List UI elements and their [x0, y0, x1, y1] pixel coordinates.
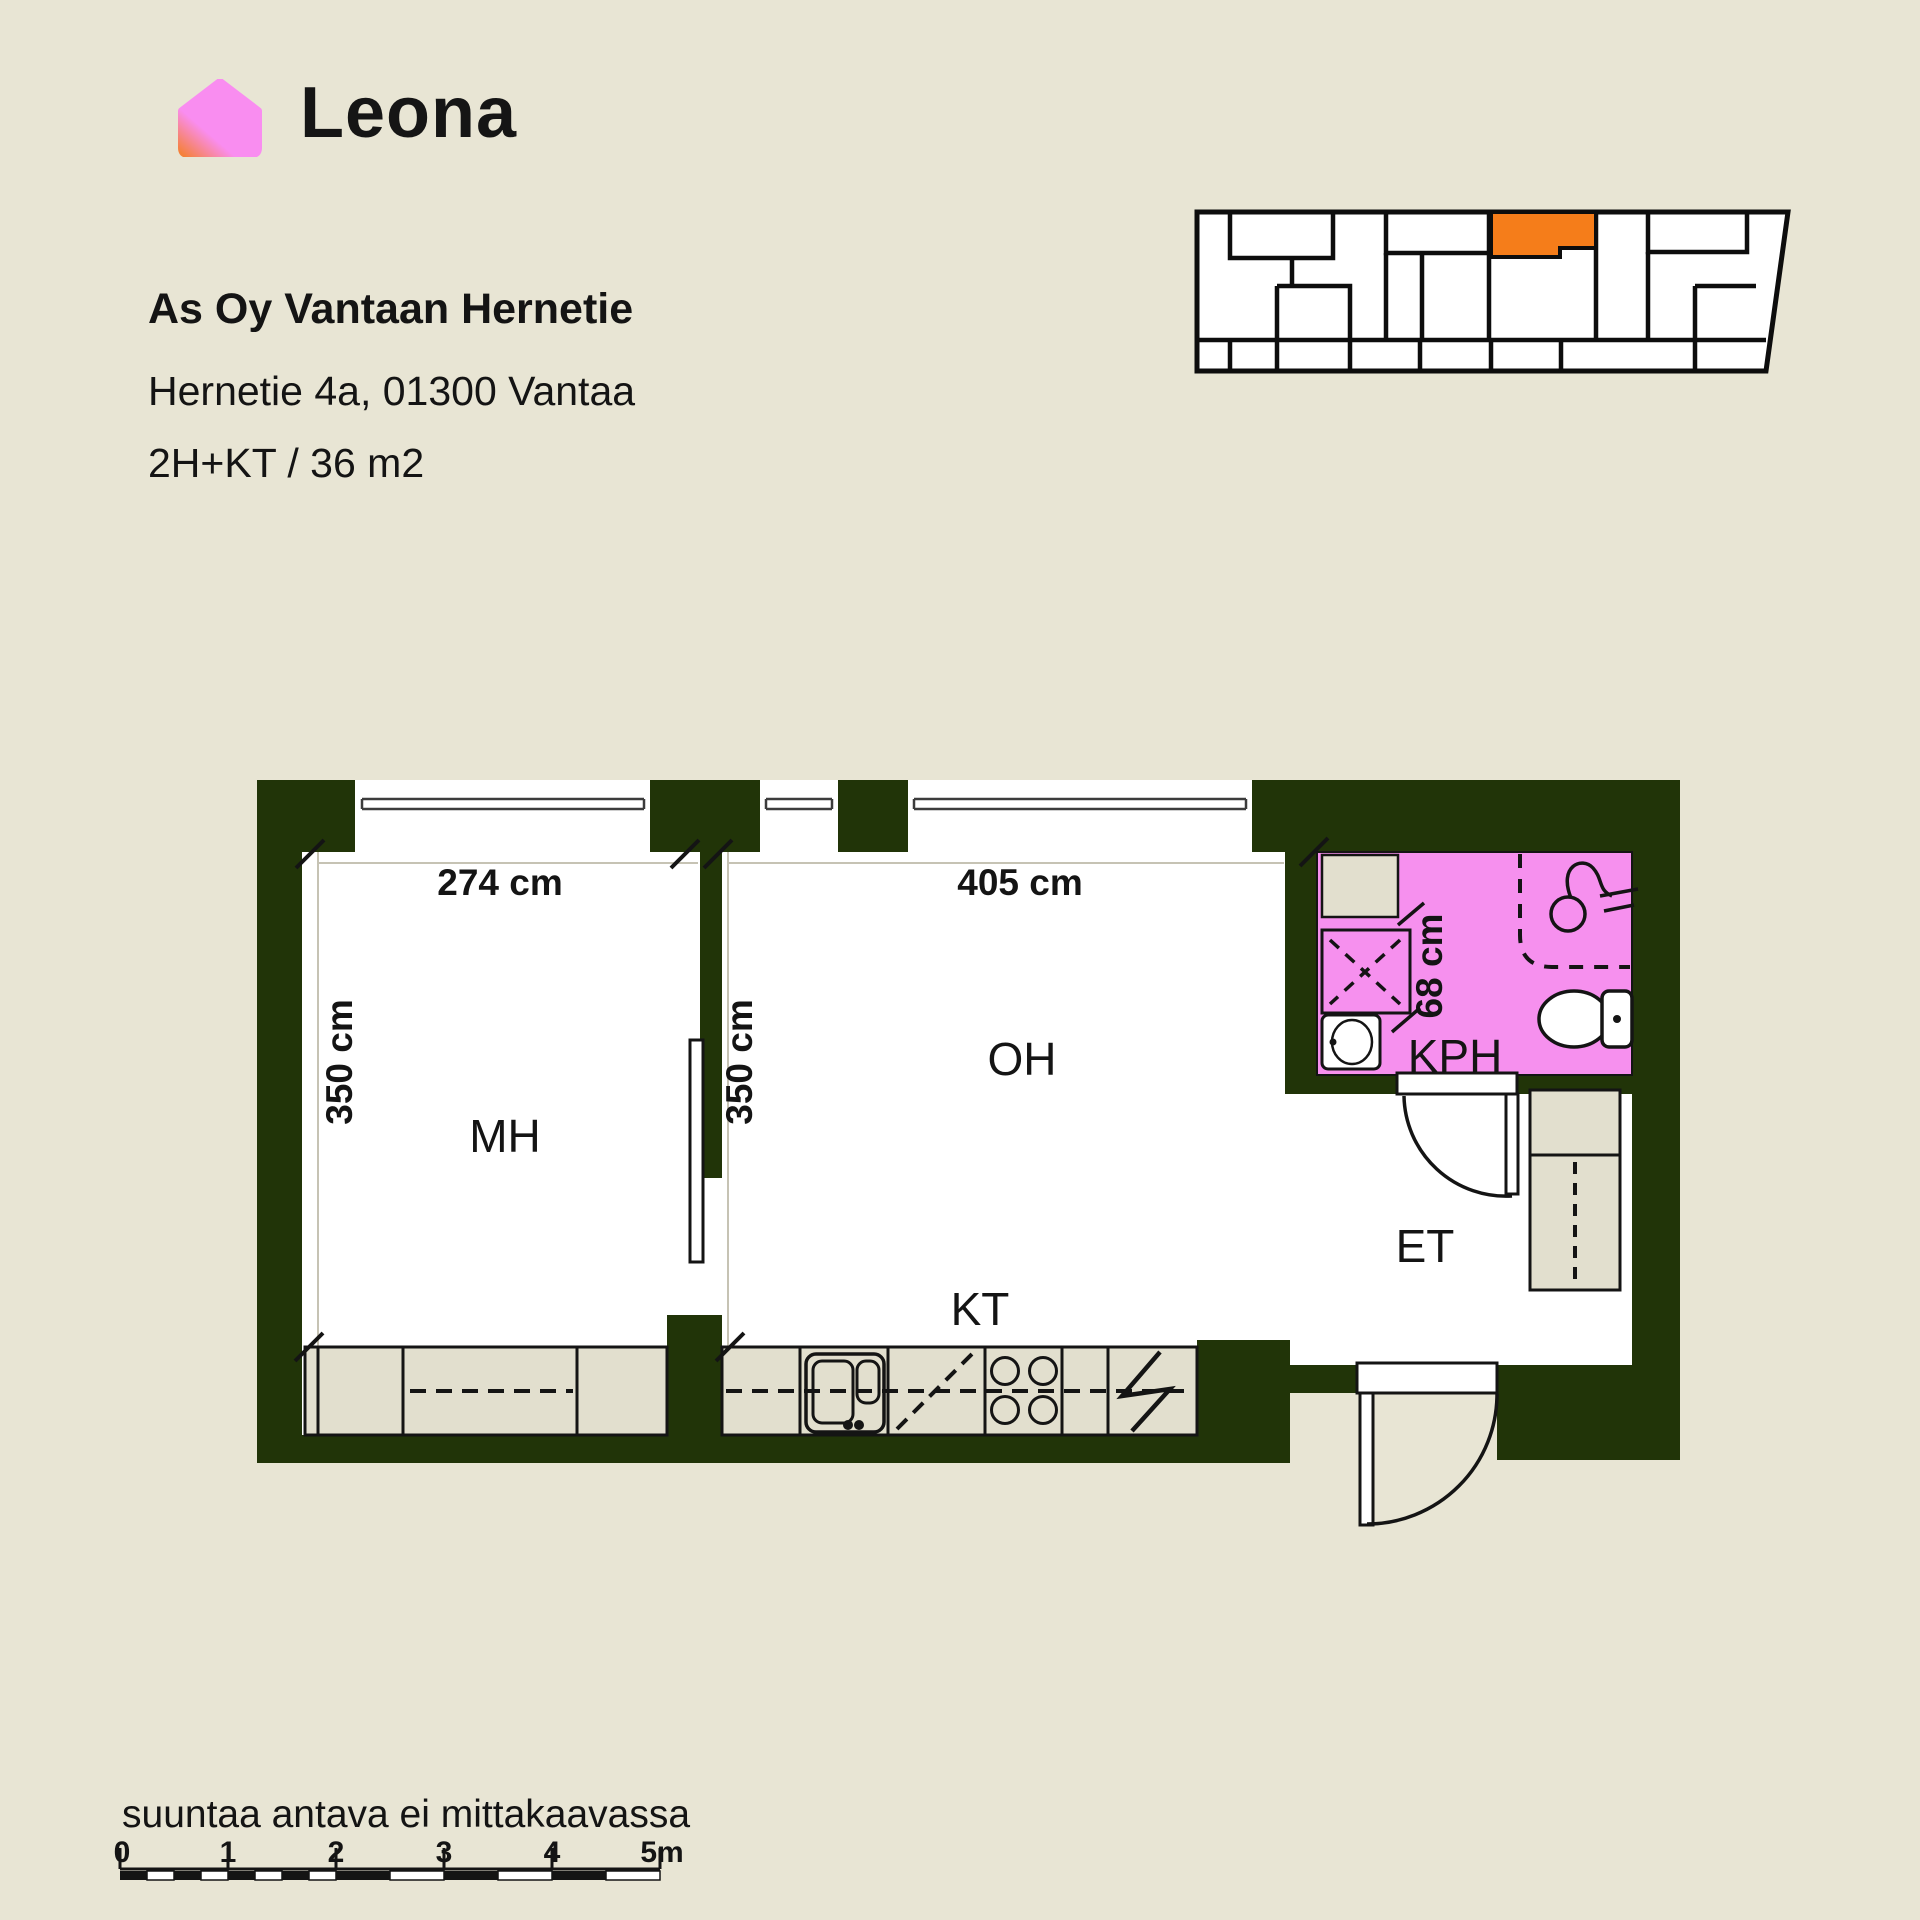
dim-mh-width: 274 cm [437, 862, 563, 903]
dim-shower-width: 68 cm [1409, 914, 1450, 1019]
scale-tick-label: 5m [640, 1836, 683, 1869]
window [355, 780, 650, 852]
site-plan [1197, 212, 1788, 371]
room-label-oh: OH [988, 1033, 1057, 1085]
toilet-icon [1539, 991, 1632, 1047]
outside-cutout [1290, 1393, 1497, 1463]
wall-bottom [257, 1435, 1290, 1463]
wall-kph-south-left [1285, 1075, 1397, 1094]
wall-top [1252, 780, 1680, 852]
dim-oh-width: 405 cm [957, 862, 1083, 903]
scale-bar-segments [120, 1871, 660, 1880]
wall-kph-west [1285, 852, 1317, 1092]
kitchen-counter [722, 1347, 1197, 1435]
room-label-kph: KPH [1408, 1030, 1503, 1082]
sliding-door [690, 1040, 703, 1262]
window [908, 780, 1252, 852]
dim-oh-height: 350 cm [719, 999, 760, 1125]
wall-kt-et [1197, 1340, 1290, 1463]
wall-right [1632, 780, 1680, 1460]
window [760, 780, 838, 852]
windows [355, 780, 1252, 852]
dim-mh-height: 350 cm [319, 999, 360, 1125]
room-label-et: ET [1396, 1220, 1455, 1272]
scale-bar: 0 1 2 3 4 5m [114, 1836, 684, 1880]
wall-et-southeast [1497, 1365, 1680, 1460]
apartment-plan: 274 cm 405 cm 350 cm 350 cm 68 cm MH OH … [257, 780, 1680, 1525]
floorplan-page: { "brand": { "logo_text": "Leona", "logo… [0, 0, 1920, 1920]
scale-bar-ticks [120, 1848, 660, 1869]
entry-wardrobe [1530, 1090, 1620, 1290]
room-label-kt: KT [951, 1283, 1010, 1335]
wall-stub [667, 1315, 722, 1463]
wall-et-south [1290, 1365, 1357, 1393]
wall-top [838, 780, 908, 852]
washbasin-icon [1322, 1015, 1380, 1069]
kph-cabinet [1322, 855, 1398, 917]
bedroom-closets [305, 1347, 667, 1435]
room-label-mh: MH [469, 1110, 541, 1162]
scale-tick-label: 0 [114, 1836, 131, 1869]
wall-top [650, 780, 760, 852]
floor-plan-drawing: 274 cm 405 cm 350 cm 350 cm 68 cm MH OH … [0, 0, 1920, 1920]
